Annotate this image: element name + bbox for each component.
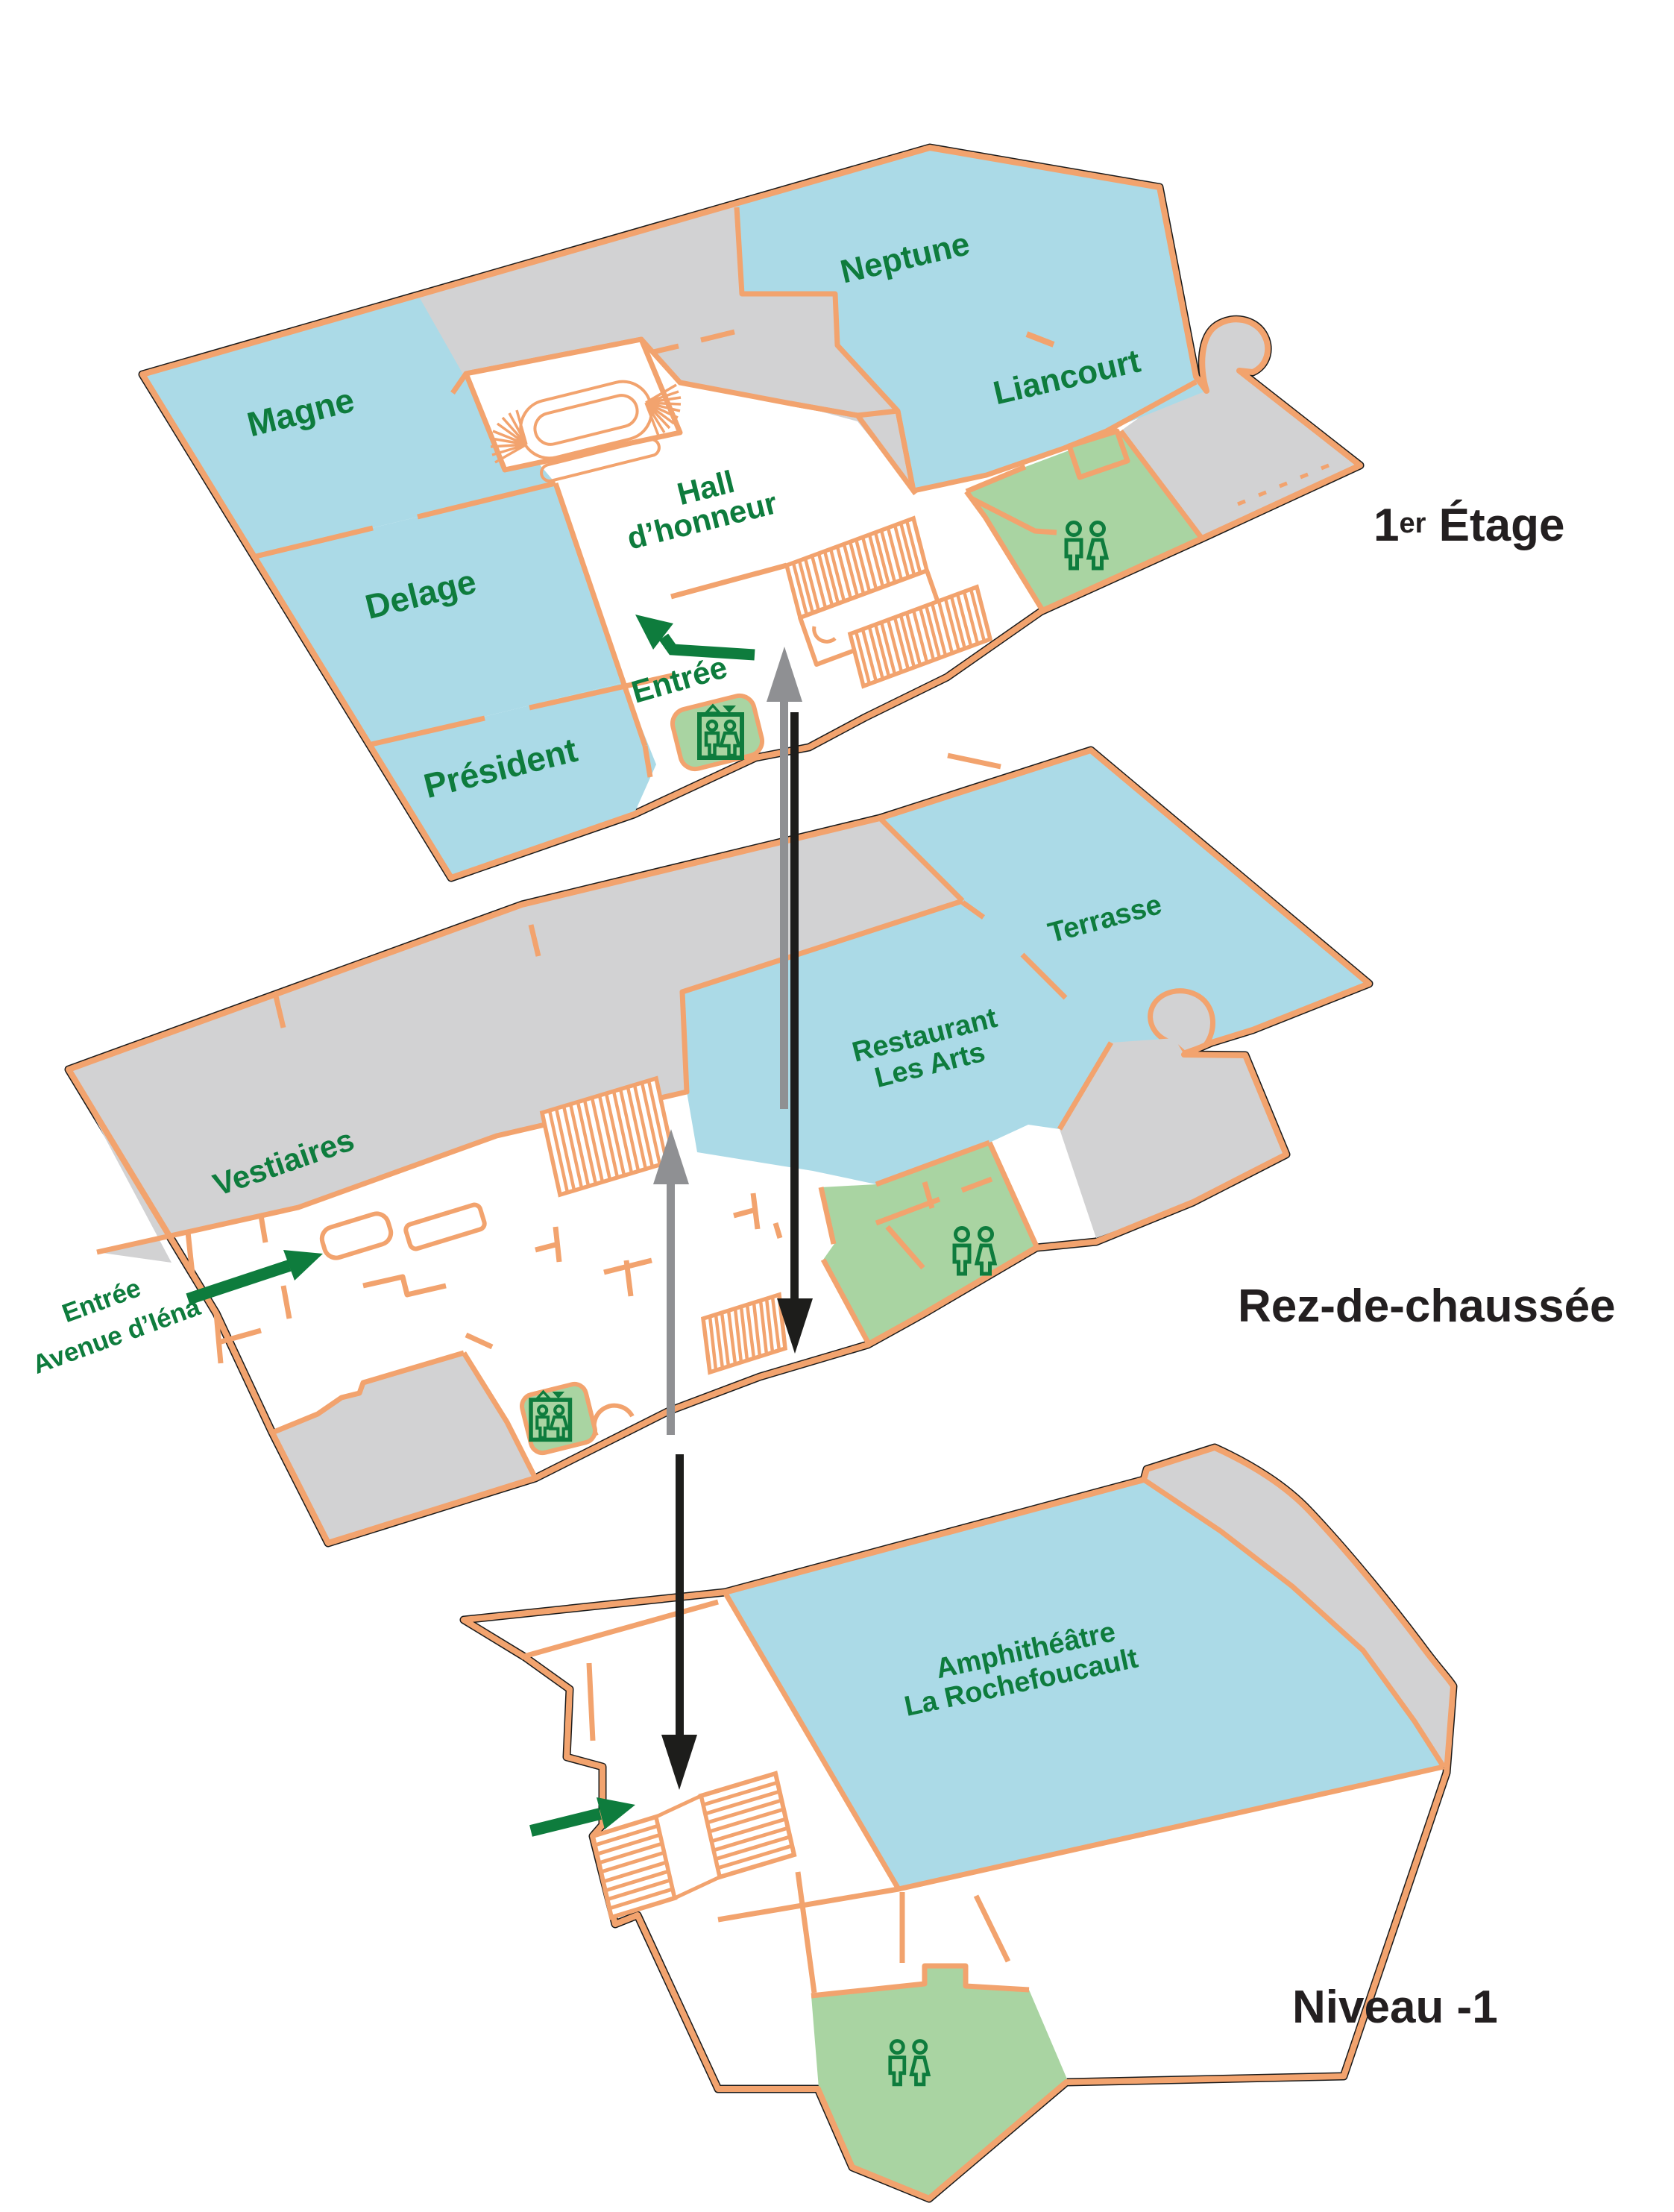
svg-text:Niveau -1: Niveau -1 — [1292, 1982, 1498, 2033]
svg-text:Rez-de-chaussée: Rez-de-chaussée — [1238, 1281, 1616, 1332]
